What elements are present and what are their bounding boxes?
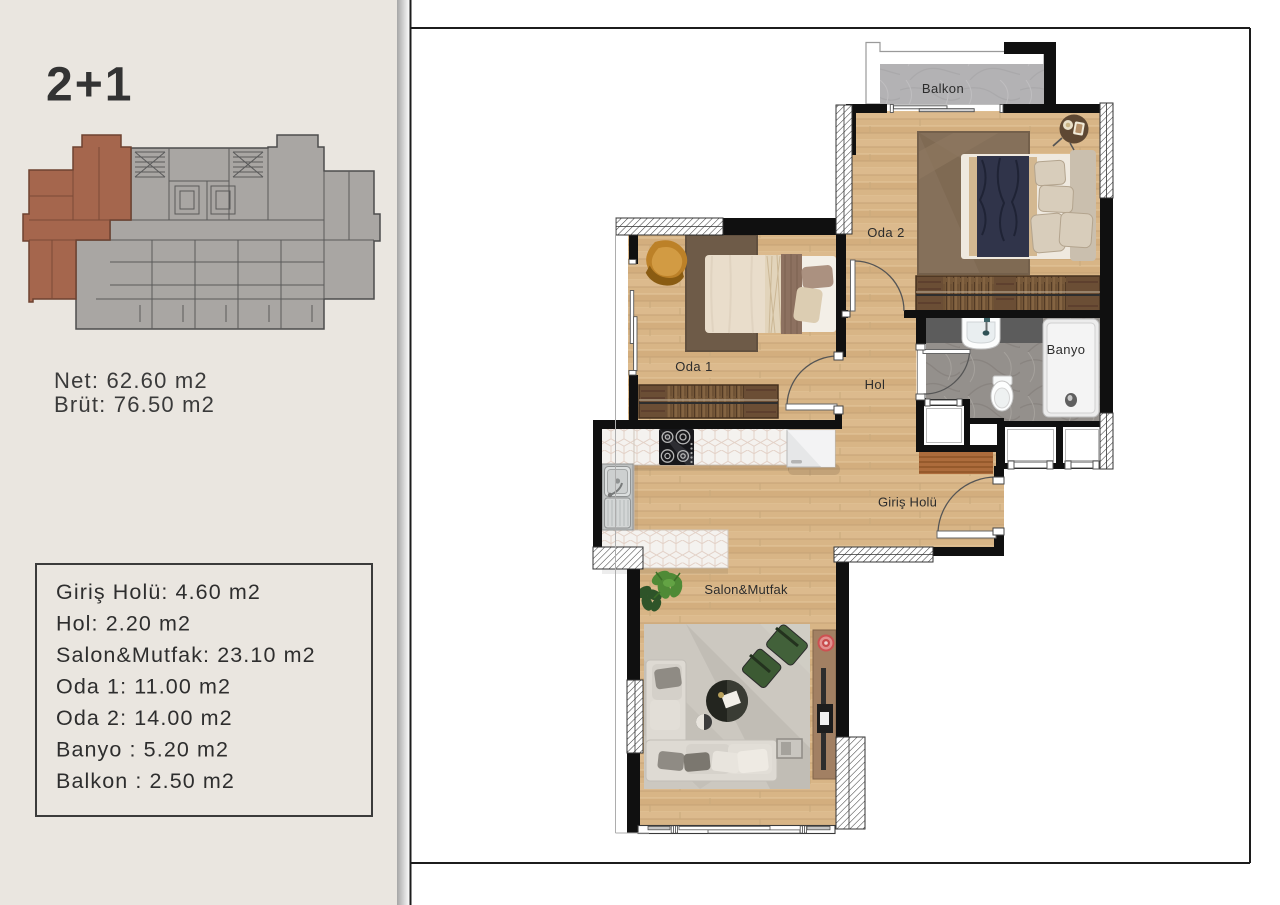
svg-text:Hol: Hol (865, 377, 886, 392)
svg-text:2+1: 2+1 (46, 59, 133, 112)
svg-text:Oda 1: Oda 1 (675, 359, 712, 374)
svg-text:Salon&Mutfak: Salon&Mutfak (704, 582, 788, 597)
svg-text:Banyo: Banyo (1047, 342, 1086, 357)
svg-text:Giriş Holü: Giriş Holü (878, 495, 937, 510)
svg-text:Salon&Mutfak: 23.10 m2: Salon&Mutfak: 23.10 m2 (56, 643, 316, 667)
svg-text:Brüt: 76.50 m2: Brüt: 76.50 m2 (54, 392, 215, 417)
svg-text:Banyo : 5.20 m2: Banyo : 5.20 m2 (56, 738, 229, 762)
svg-text:Balkon: Balkon (922, 81, 964, 96)
svg-text:Giriş Holü: 4.60 m2: Giriş Holü: 4.60 m2 (56, 580, 261, 604)
svg-text:Oda 2: Oda 2 (867, 225, 904, 240)
svg-text:Oda 2: 14.00 m2: Oda 2: 14.00 m2 (56, 706, 233, 730)
svg-text:Oda 1: 11.00 m2: Oda 1: 11.00 m2 (56, 675, 231, 699)
svg-text:Balkon : 2.50 m2: Balkon : 2.50 m2 (56, 769, 235, 793)
svg-text:Hol: 2.20 m2: Hol: 2.20 m2 (56, 612, 191, 636)
svg-text:Net: 62.60 m2: Net: 62.60 m2 (54, 368, 208, 393)
